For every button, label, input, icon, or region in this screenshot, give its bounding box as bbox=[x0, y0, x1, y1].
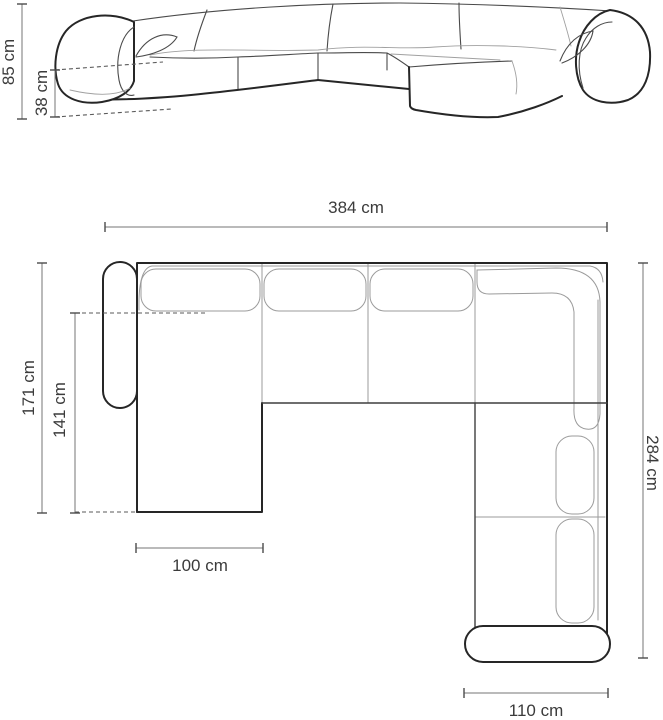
left-side-depth-label: 171 cm bbox=[19, 346, 39, 430]
right-side-depth-label: 284 cm bbox=[642, 421, 662, 505]
total-height-label: 85 cm bbox=[0, 20, 19, 104]
seat-height-label: 38 cm bbox=[32, 51, 52, 135]
left-chaise-width-label: 100 cm bbox=[158, 556, 242, 576]
dim-total-width bbox=[105, 222, 607, 232]
total-width-label: 384 cm bbox=[314, 198, 398, 218]
front-view-drawing bbox=[55, 3, 650, 117]
top-view-drawing bbox=[75, 262, 610, 662]
dim-left-inner-depth bbox=[70, 313, 80, 513]
dim-left-chaise-width bbox=[136, 543, 263, 553]
sofa-dimension-diagram: 85 cm 38 cm 384 cm 171 cm 141 cm 284 cm … bbox=[0, 0, 663, 720]
dim-right-chaise-width bbox=[464, 688, 608, 698]
left-inner-depth-label: 141 cm bbox=[50, 368, 70, 452]
right-chaise-width-label: 110 cm bbox=[494, 701, 578, 720]
diagram-linework bbox=[0, 0, 663, 720]
